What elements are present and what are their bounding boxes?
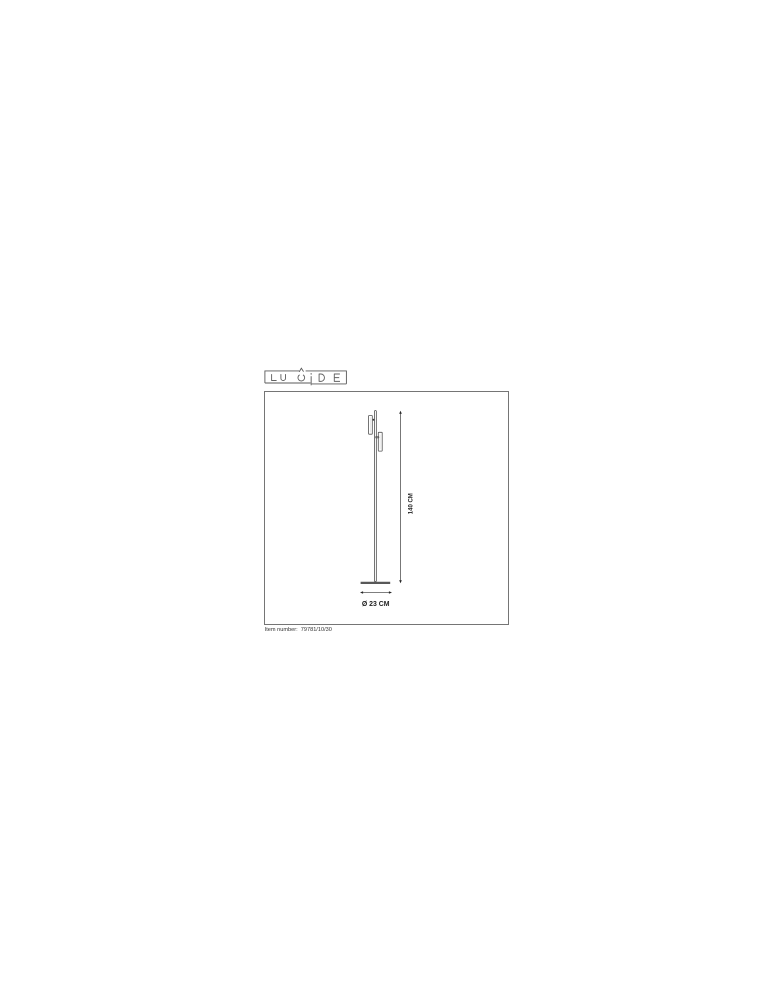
svg-text:140 CM: 140 CM: [409, 493, 415, 514]
svg-text:Item number: 79781/10/30: Item number: 79781/10/30: [265, 627, 332, 633]
svg-text:Ø 23 CM: Ø 23 CM: [362, 601, 390, 608]
